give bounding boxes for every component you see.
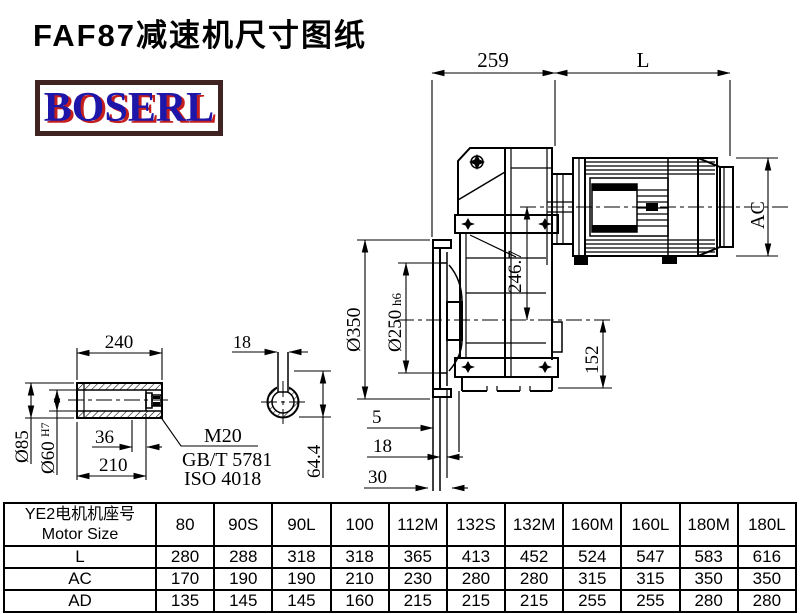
col-header: 90L (272, 503, 330, 546)
header-motor-size-cn: YE2电机机座号 (5, 505, 155, 524)
dim-spigot-tol: h6 (389, 293, 404, 307)
motor-foot (662, 256, 677, 264)
row-label: AC (4, 568, 156, 590)
cell: 190 (272, 568, 330, 590)
dim-210: 210 (99, 455, 128, 476)
cell: 452 (505, 546, 563, 568)
cell: 280 (505, 568, 563, 590)
cell: 350 (680, 568, 738, 590)
table-row: AC 170 190 190 210 230 280 280 315 315 3… (4, 568, 796, 590)
cell: 230 (389, 568, 447, 590)
cell: 583 (680, 546, 738, 568)
dim-246-7: 246.7 (505, 250, 526, 293)
cell: 280 (738, 590, 796, 612)
table-header-row: YE2电机机座号 Motor Size 80 90S 90L 100 112M … (4, 503, 796, 546)
col-header: 160L (621, 503, 679, 546)
dim-259: 259 (477, 48, 509, 72)
dim-36: 36 (95, 427, 114, 448)
cell: 215 (505, 590, 563, 612)
dim-5: 5 (372, 407, 382, 428)
cell: 135 (156, 590, 214, 612)
dimension-drawing: 259 L AC Ø350 Ø250 h6 (0, 0, 800, 500)
cell: 318 (331, 546, 389, 568)
cell: 145 (214, 590, 272, 612)
dim-152: 152 (582, 346, 603, 375)
col-header: 100 (331, 503, 389, 546)
cell: 160 (331, 590, 389, 612)
col-header: 112M (389, 503, 447, 546)
table-row: AD 135 145 145 160 215 215 215 255 255 2… (4, 590, 796, 612)
page: FAF87减速机尺寸图纸 BOSERL (0, 0, 800, 614)
col-header: 180M (680, 503, 738, 546)
output-flange (433, 240, 462, 491)
header-motor-size-en: Motor Size (5, 525, 155, 544)
cell: 145 (272, 590, 330, 612)
cell: 524 (563, 546, 621, 568)
shaft-section-view: 240 Ø85 Ø60 H7 (12, 332, 272, 490)
cell: 215 (389, 590, 447, 612)
bolt-icon (538, 218, 552, 230)
cell: 315 (563, 568, 621, 590)
dim-shaft-od: Ø85 (12, 430, 33, 463)
dim-AC: AC (747, 201, 769, 229)
col-header: 90S (214, 503, 272, 546)
dim-30: 30 (368, 467, 387, 488)
bolt-spec-iso: ISO 4018 (184, 468, 261, 490)
cell: 280 (447, 568, 505, 590)
cell: 547 (621, 546, 679, 568)
cell: 288 (214, 546, 272, 568)
motor-size-table: YE2电机机座号 Motor Size 80 90S 90L 100 112M … (3, 502, 797, 613)
cell: 170 (156, 568, 214, 590)
row-label: L (4, 546, 156, 568)
dim-bore-tol: H7 (38, 422, 52, 437)
bolt-icon (461, 361, 475, 373)
col-header: 80 (156, 503, 214, 546)
col-header: 132S (447, 503, 505, 546)
cell: 315 (621, 568, 679, 590)
cell: 318 (272, 546, 330, 568)
lifting-eye-icon (469, 154, 485, 170)
col-header: 132M (505, 503, 563, 546)
header-motor-size: YE2电机机座号 Motor Size (4, 503, 156, 546)
cell: 210 (331, 568, 389, 590)
dim-18: 18 (373, 436, 392, 457)
bolt-icon (461, 218, 475, 230)
motor (547, 158, 733, 265)
bolt-icon (538, 361, 552, 373)
cell: 255 (621, 590, 679, 612)
main-view: 259 L AC Ø350 Ø250 h6 (343, 48, 788, 491)
dim-keyway-depth: 64.4 (304, 444, 325, 478)
dim-L: L (637, 48, 650, 72)
table-row: L 280 288 318 318 365 413 452 524 547 58… (4, 546, 796, 568)
col-header: 180L (738, 503, 796, 546)
row-label: AD (4, 590, 156, 612)
dim-240: 240 (105, 332, 134, 353)
dim-keyway-width: 18 (233, 332, 251, 352)
motor-foot (574, 256, 588, 265)
cell: 190 (214, 568, 272, 590)
dim-spigot: Ø250 (385, 310, 406, 352)
bolt-spec-thread: M20 (204, 425, 242, 447)
cell: 255 (563, 590, 621, 612)
main-dimensions: 259 L AC Ø350 Ø250 h6 (343, 48, 778, 488)
cell: 413 (447, 546, 505, 568)
cell: 215 (447, 590, 505, 612)
cell: 280 (680, 590, 738, 612)
cell: 365 (389, 546, 447, 568)
col-header: 160M (563, 503, 621, 546)
dim-flange-od: Ø350 (343, 308, 365, 352)
cell: 280 (156, 546, 214, 568)
cell: 350 (738, 568, 796, 590)
motor-stator-block (590, 178, 668, 236)
dim-bore: Ø60 (38, 441, 59, 474)
cell: 616 (738, 546, 796, 568)
